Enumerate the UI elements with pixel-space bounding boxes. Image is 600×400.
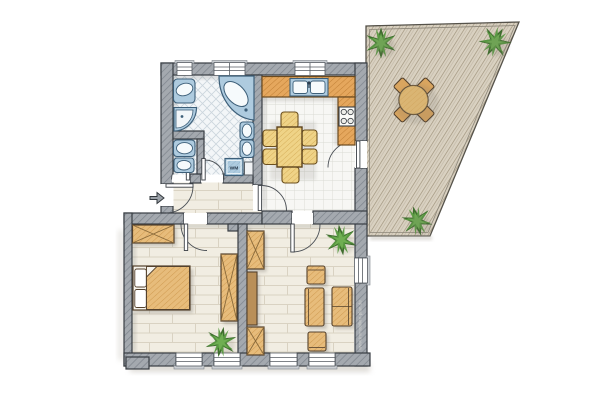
svg-text:WM: WM	[230, 166, 239, 172]
svg-text:www.immobilien-plan.de: www.immobilien-plan.de	[358, 300, 363, 350]
